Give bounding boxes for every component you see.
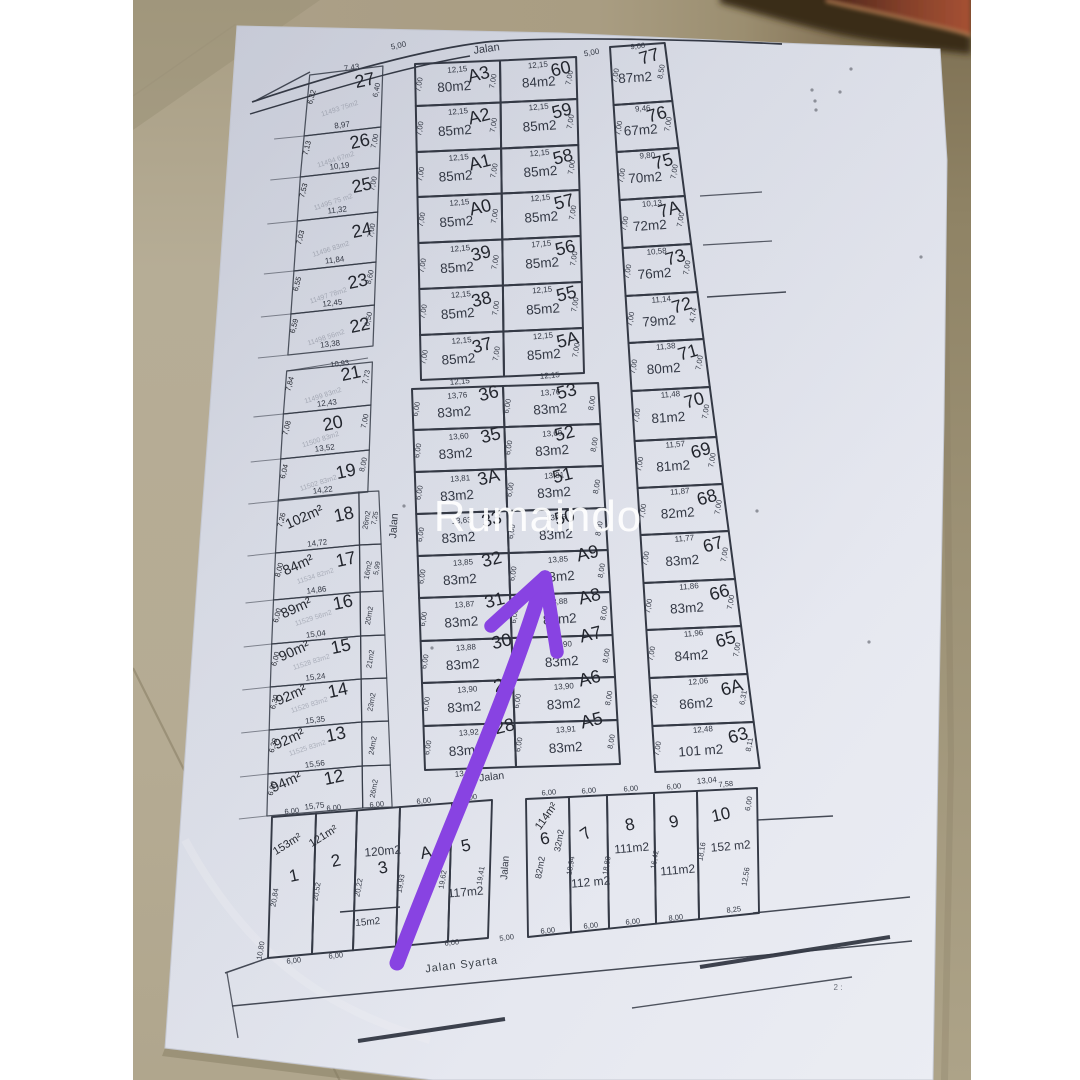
svg-text:12,15: 12,15 xyxy=(450,289,471,300)
svg-text:6,00: 6,00 xyxy=(666,781,681,791)
svg-text:Jalan: Jalan xyxy=(387,513,401,539)
svg-text:13,85: 13,85 xyxy=(453,557,474,567)
svg-text:12,48: 12,48 xyxy=(692,724,713,735)
svg-text:13,90: 13,90 xyxy=(457,684,478,694)
svg-text:83m2: 83m2 xyxy=(535,442,570,459)
svg-text:83m2: 83m2 xyxy=(546,695,581,712)
svg-text:6,00: 6,00 xyxy=(369,799,384,809)
svg-text:85m2: 85m2 xyxy=(438,167,473,184)
svg-text:85m2: 85m2 xyxy=(526,346,561,363)
svg-text:81m2: 81m2 xyxy=(656,457,691,474)
svg-text:26: 26 xyxy=(348,129,372,153)
svg-text:83m2: 83m2 xyxy=(670,599,705,616)
svg-text:11,96: 11,96 xyxy=(683,628,704,639)
svg-text:85m2: 85m2 xyxy=(440,259,475,276)
svg-text:7,58: 7,58 xyxy=(718,779,733,789)
svg-text:20: 20 xyxy=(321,411,345,435)
svg-text:6,00: 6,00 xyxy=(326,802,341,812)
svg-text:13,87: 13,87 xyxy=(454,599,475,609)
svg-text:12,15: 12,15 xyxy=(528,102,549,113)
svg-text:18: 18 xyxy=(332,502,356,526)
svg-text:85m2: 85m2 xyxy=(441,350,476,367)
svg-text:79m2: 79m2 xyxy=(642,312,677,329)
svg-text:6,00: 6,00 xyxy=(416,796,431,806)
svg-text:76m2: 76m2 xyxy=(637,265,672,282)
svg-text:6,00: 6,00 xyxy=(540,925,555,935)
svg-text:83m2: 83m2 xyxy=(445,656,480,673)
svg-text:85m2: 85m2 xyxy=(523,163,558,180)
svg-text:6,00: 6,00 xyxy=(328,950,343,960)
svg-text:83m2: 83m2 xyxy=(533,400,568,417)
svg-text:83m2: 83m2 xyxy=(548,739,583,756)
svg-text:13,04: 13,04 xyxy=(696,775,717,786)
svg-text:6,00: 6,00 xyxy=(583,920,598,930)
svg-text:12,06: 12,06 xyxy=(688,676,709,687)
svg-text:8,00: 8,00 xyxy=(668,912,683,922)
svg-text:84m2: 84m2 xyxy=(674,647,709,664)
svg-text:19: 19 xyxy=(334,459,358,483)
svg-text:11,57: 11,57 xyxy=(665,439,686,450)
svg-text:12,15: 12,15 xyxy=(530,193,551,204)
svg-text:13,76: 13,76 xyxy=(447,390,468,400)
svg-text:16: 16 xyxy=(331,590,355,614)
svg-text:6,00: 6,00 xyxy=(581,785,596,795)
svg-text:11,77: 11,77 xyxy=(674,533,695,544)
svg-text:11,48: 11,48 xyxy=(660,389,681,400)
svg-text:17,15: 17,15 xyxy=(531,239,552,250)
svg-text:15: 15 xyxy=(329,634,353,658)
svg-text:87m2: 87m2 xyxy=(618,69,653,86)
svg-text:83m2: 83m2 xyxy=(437,403,472,420)
svg-text:17: 17 xyxy=(334,547,358,571)
svg-text:85m2: 85m2 xyxy=(526,300,561,317)
svg-text:13,81: 13,81 xyxy=(450,473,471,483)
svg-text:12,15: 12,15 xyxy=(539,370,560,381)
svg-text:85m2: 85m2 xyxy=(439,213,474,230)
svg-text:84m2: 84m2 xyxy=(521,73,556,90)
svg-text:2 :: 2 : xyxy=(834,983,843,992)
svg-text:11,38: 11,38 xyxy=(656,341,677,352)
svg-text:13,85: 13,85 xyxy=(548,554,569,564)
svg-text:6,00: 6,00 xyxy=(284,806,299,816)
svg-text:14: 14 xyxy=(326,678,350,702)
svg-text:85m2: 85m2 xyxy=(524,208,559,225)
svg-text:12,15: 12,15 xyxy=(451,335,472,346)
svg-text:13,92: 13,92 xyxy=(458,727,479,737)
svg-text:12,15: 12,15 xyxy=(449,376,470,387)
svg-text:86m2: 86m2 xyxy=(679,695,714,712)
svg-text:13,90: 13,90 xyxy=(553,681,574,691)
svg-text:15m2: 15m2 xyxy=(355,916,381,929)
svg-text:12,15: 12,15 xyxy=(527,60,548,71)
svg-text:12,15: 12,15 xyxy=(529,148,550,159)
svg-text:81m2: 81m2 xyxy=(651,409,686,426)
svg-text:80m2: 80m2 xyxy=(437,78,472,95)
svg-text:12,15: 12,15 xyxy=(532,285,553,296)
svg-text:8,25: 8,25 xyxy=(726,904,741,914)
svg-text:83m2: 83m2 xyxy=(442,571,477,588)
svg-text:12,15: 12,15 xyxy=(450,243,471,254)
svg-text:12: 12 xyxy=(322,765,346,789)
svg-text:6,00: 6,00 xyxy=(286,955,301,965)
svg-text:85m2: 85m2 xyxy=(440,305,475,322)
svg-text:12,15: 12,15 xyxy=(447,64,468,75)
svg-text:83m2: 83m2 xyxy=(665,552,700,569)
svg-text:Rumaindo: Rumaindo xyxy=(434,492,643,541)
svg-text:Jalan: Jalan xyxy=(499,856,512,881)
svg-text:6,00: 6,00 xyxy=(541,787,556,797)
svg-text:6,00: 6,00 xyxy=(625,916,640,926)
svg-text:85m2: 85m2 xyxy=(522,117,557,134)
svg-text:85m2: 85m2 xyxy=(437,122,472,139)
svg-text:11,86: 11,86 xyxy=(679,581,700,592)
svg-text:83m2: 83m2 xyxy=(444,613,479,630)
svg-text:13,60: 13,60 xyxy=(448,431,469,441)
svg-text:83m2: 83m2 xyxy=(438,445,473,462)
svg-text:6,00: 6,00 xyxy=(444,937,459,947)
svg-text:12,15: 12,15 xyxy=(533,331,554,342)
svg-text:85m2: 85m2 xyxy=(525,254,560,271)
svg-text:83m2: 83m2 xyxy=(447,698,482,715)
svg-text:11,87: 11,87 xyxy=(670,486,691,497)
svg-text:13,88: 13,88 xyxy=(456,642,477,652)
svg-text:80m2: 80m2 xyxy=(646,360,681,377)
svg-text:10: 10 xyxy=(710,803,732,826)
svg-text:82m2: 82m2 xyxy=(660,504,695,521)
svg-text:13: 13 xyxy=(324,722,348,746)
svg-text:13,91: 13,91 xyxy=(555,724,576,734)
svg-text:6,00: 6,00 xyxy=(623,783,638,793)
svg-text:101 m2: 101 m2 xyxy=(678,741,724,759)
